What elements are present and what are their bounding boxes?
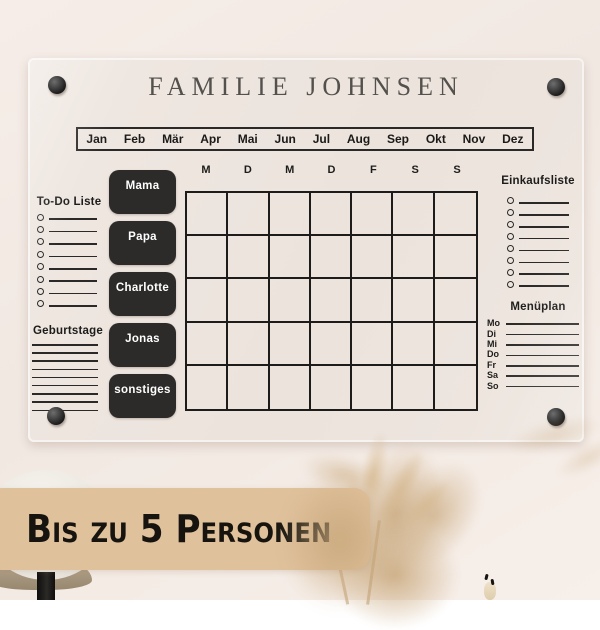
weekday-label: S [394, 164, 436, 176]
checklist-item [37, 223, 97, 235]
write-line [506, 344, 579, 346]
checklist-item [37, 285, 97, 297]
menu-day-row: Mi [487, 339, 579, 349]
months-bar: JanFebMärAprMaiJunJulAugSepOktNovDez [76, 127, 534, 151]
calendar-cell [270, 236, 311, 279]
dried-sprig [484, 582, 496, 600]
checklist-item [507, 254, 569, 266]
checkbox-circle [37, 288, 44, 295]
calendar-cell [393, 193, 434, 236]
pampas-grass-plume-foreground [280, 470, 400, 610]
month-label: Aug [347, 132, 370, 146]
write-line [49, 243, 97, 245]
calendar-cell [228, 193, 269, 236]
write-line [32, 385, 98, 387]
checkbox-circle [37, 300, 44, 307]
weekday-label: F [352, 164, 394, 176]
member-tag-label: Mama [126, 180, 160, 192]
calendar-cell [352, 366, 393, 409]
month-label: Nov [463, 132, 486, 146]
menu-day-row: Fr [487, 360, 579, 370]
mount-screw-top-left [48, 76, 66, 94]
checklist-item [507, 231, 569, 243]
checklist-item [507, 243, 569, 255]
member-tag: Papa [109, 221, 176, 265]
menu-plan-title: Menüplan [498, 301, 578, 313]
menu-day-row: Mo [487, 318, 579, 328]
calendar-cell [352, 279, 393, 322]
weekday-label: D [227, 164, 269, 176]
member-tag: sonstiges [109, 374, 176, 418]
todo-list [37, 211, 97, 310]
calendar-cell [393, 323, 434, 366]
month-label: Dez [502, 132, 523, 146]
month-label: Jun [275, 132, 296, 146]
menu-day-label: Di [487, 329, 503, 339]
calendar-cell [228, 366, 269, 409]
month-label: Apr [200, 132, 221, 146]
member-tag-label: Papa [128, 231, 157, 243]
mount-screw-top-right [547, 78, 565, 96]
calendar-cell [187, 323, 228, 366]
write-line [49, 218, 97, 220]
write-line [32, 360, 98, 362]
checklist-item [507, 207, 569, 219]
checklist-item [507, 219, 569, 231]
menu-day-label: Fr [487, 360, 503, 370]
write-line [506, 375, 579, 377]
write-line [32, 393, 98, 395]
checklist-item [507, 278, 569, 290]
calendar-cell [393, 236, 434, 279]
write-line [49, 268, 97, 270]
calendar-cell [311, 279, 352, 322]
calendar-cell [270, 366, 311, 409]
menu-day-row: Do [487, 349, 579, 359]
calendar-cell [311, 236, 352, 279]
checkbox-circle [507, 269, 514, 276]
checklist-item [37, 236, 97, 248]
month-label: Sep [387, 132, 409, 146]
checkbox-circle [37, 251, 44, 258]
calendar-cell [435, 236, 476, 279]
birthdays-lines [32, 344, 98, 418]
menu-day-label: Do [487, 349, 503, 359]
menu-day-label: Mo [487, 318, 503, 328]
menu-day-label: So [487, 381, 503, 391]
checkbox-circle [507, 209, 514, 216]
checkbox-circle [37, 276, 44, 283]
month-label: Feb [124, 132, 145, 146]
write-line [506, 386, 579, 388]
calendar-cell [311, 193, 352, 236]
write-line [519, 202, 569, 204]
menu-plan-list: MoDiMiDoFrSaSo [487, 318, 579, 391]
write-line [519, 262, 569, 264]
write-line [519, 226, 569, 228]
calendar-cell [187, 366, 228, 409]
write-line [506, 323, 579, 325]
checkbox-circle [507, 281, 514, 288]
checklist-item [37, 298, 97, 310]
acrylic-family-planner-board: FAMILIE JOHNSEN JanFebMärAprMaiJunJulAug… [28, 58, 584, 442]
calendar-cell [270, 323, 311, 366]
checkbox-circle [37, 238, 44, 245]
write-line [32, 377, 98, 379]
checkbox-circle [507, 233, 514, 240]
calendar-cell [435, 193, 476, 236]
write-line [32, 401, 98, 403]
write-line [519, 214, 569, 216]
calendar-cell [352, 323, 393, 366]
member-tags-column: MamaPapaCharlotteJonassonstiges [109, 170, 176, 418]
calendar-cell [352, 236, 393, 279]
calendar-cell [352, 193, 393, 236]
member-tag-label: Charlotte [116, 282, 169, 294]
checkbox-circle [507, 197, 514, 204]
write-line [49, 280, 97, 282]
calendar-cell [435, 366, 476, 409]
write-line [519, 238, 569, 240]
checkbox-circle [507, 257, 514, 264]
write-line [49, 293, 97, 295]
weekday-label: M [185, 164, 227, 176]
checkbox-circle [37, 226, 44, 233]
member-tag-label: sonstiges [114, 384, 170, 396]
menu-day-row: So [487, 380, 579, 390]
menu-day-label: Sa [487, 370, 503, 380]
family-name-title: FAMILIE JOHNSEN [28, 72, 584, 102]
checklist-item [37, 261, 97, 273]
shopping-list-title: Einkaufsliste [486, 175, 590, 187]
menu-day-row: Di [487, 328, 579, 338]
write-line [506, 365, 579, 367]
calendar-cell [393, 366, 434, 409]
calendar-cell [393, 279, 434, 322]
weekday-label: D [311, 164, 353, 176]
todo-list-title: To-Do Liste [30, 196, 108, 208]
calendar-cell [270, 193, 311, 236]
write-line [49, 305, 97, 307]
checkbox-circle [507, 245, 514, 252]
write-line [32, 344, 98, 346]
write-line [32, 410, 98, 412]
calendar-cell [187, 236, 228, 279]
birthdays-title: Geburtstage [28, 325, 108, 337]
checkbox-circle [37, 263, 44, 270]
month-label: Mär [162, 132, 183, 146]
calendar-cell [228, 323, 269, 366]
weekday-label: M [269, 164, 311, 176]
member-tag: Jonas [109, 323, 176, 367]
month-label: Okt [426, 132, 446, 146]
write-line [32, 369, 98, 371]
shopping-list [507, 195, 569, 290]
checklist-item [507, 266, 569, 278]
write-line [519, 250, 569, 252]
menu-day-row: Sa [487, 370, 579, 380]
menu-day-label: Mi [487, 339, 503, 349]
member-tag: Charlotte [109, 272, 176, 316]
write-line [32, 352, 98, 354]
checklist-item [37, 211, 97, 223]
calendar-cell [187, 193, 228, 236]
checklist-item [37, 248, 97, 260]
weekday-header-row: MDMDFSS [185, 164, 478, 176]
mount-screw-bottom-left [47, 407, 65, 425]
write-line [506, 334, 579, 336]
calendar-cell [270, 279, 311, 322]
write-line [506, 355, 579, 357]
calendar-cell [187, 279, 228, 322]
calendar-grid [185, 191, 478, 411]
month-label: Jan [86, 132, 107, 146]
member-tag-label: Jonas [125, 333, 160, 345]
checkbox-circle [507, 221, 514, 228]
calendar-cell [228, 279, 269, 322]
calendar-cell [435, 323, 476, 366]
checklist-item [37, 273, 97, 285]
month-label: Jul [313, 132, 330, 146]
calendar-cell [228, 236, 269, 279]
floor-lamp-pole [37, 572, 55, 600]
month-label: Mai [238, 132, 258, 146]
write-line [49, 256, 97, 258]
calendar-cell [311, 366, 352, 409]
member-tag: Mama [109, 170, 176, 214]
write-line [519, 285, 569, 287]
checklist-item [507, 195, 569, 207]
calendar-cell [311, 323, 352, 366]
write-line [519, 273, 569, 275]
checkbox-circle [37, 214, 44, 221]
weekday-label: S [436, 164, 478, 176]
calendar-cell [435, 279, 476, 322]
write-line [49, 231, 97, 233]
